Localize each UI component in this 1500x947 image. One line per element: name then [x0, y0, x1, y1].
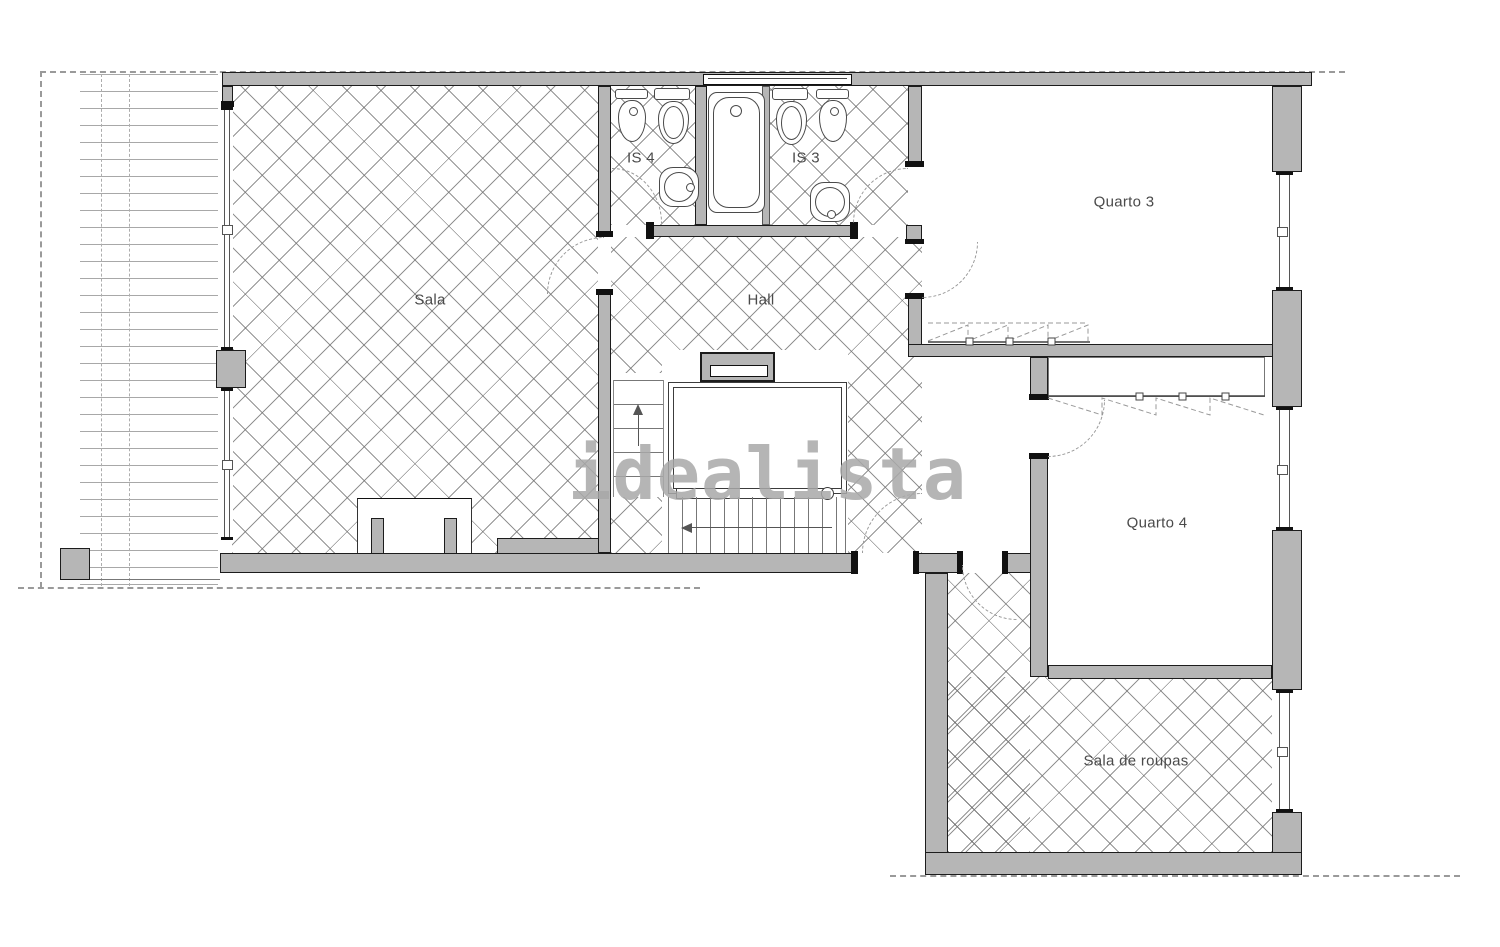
- boundary-line-left: [40, 71, 42, 588]
- wall: [220, 553, 857, 573]
- wall: [216, 350, 246, 388]
- quarto3-wardrobe-sliding-doors: [928, 322, 1090, 343]
- boundary-line-bottom-left: [18, 587, 700, 589]
- wall: [1048, 665, 1272, 679]
- stairs-up-arrow-icon: [633, 404, 643, 415]
- wall: [908, 86, 922, 167]
- room-label-is4: IS 4: [627, 150, 655, 167]
- wall: [1272, 290, 1302, 407]
- wall: [918, 553, 962, 573]
- floor-hatch-sala: [232, 86, 598, 553]
- wall: [925, 852, 1302, 875]
- sink-icon: [659, 167, 699, 207]
- toilet-icon: [772, 88, 808, 100]
- wall: [650, 225, 856, 237]
- quarto4-wardrobe-sliding-doors: [1048, 395, 1265, 418]
- toilet-icon: [654, 88, 690, 100]
- fireplace-post: [371, 518, 384, 554]
- wall: [1272, 530, 1302, 690]
- bidet-icon: [615, 89, 648, 99]
- lift-door-slot: [710, 365, 768, 377]
- wall: [598, 86, 611, 237]
- window-sala-terrace-lower: [221, 388, 233, 540]
- window-sala-de-roupas: [1276, 690, 1293, 812]
- room-label-sala: Sala: [414, 292, 445, 309]
- boundary-line-bottom-right: [890, 875, 1460, 877]
- quarto4-wardrobe-body: [1048, 357, 1265, 397]
- wall: [497, 538, 611, 554]
- room-label-hall: Hall: [747, 292, 774, 309]
- idealista-watermark: idealista: [568, 432, 967, 516]
- wall: [695, 86, 707, 225]
- terrace-joint-line: [101, 74, 102, 586]
- room-label-quarto3: Quarto 3: [1094, 194, 1155, 211]
- wall: [908, 344, 1302, 357]
- bathtub-icon: [708, 92, 765, 213]
- door-swing-quarto3: [922, 242, 978, 298]
- terrace-joint-line: [129, 74, 130, 586]
- fireplace-post: [444, 518, 457, 554]
- stairs-down-arrow-icon: [681, 523, 692, 533]
- terrace-edge-line: [90, 579, 220, 580]
- wall: [1272, 86, 1302, 172]
- window-quarto4: [1276, 407, 1293, 530]
- window-quarto3: [1276, 172, 1293, 290]
- room-label-is3: IS 3: [792, 150, 820, 167]
- room-label-sala-de-roupas: Sala de roupas: [1083, 753, 1188, 770]
- bidet-icon: [816, 89, 849, 99]
- stairs-direction-line: [690, 527, 832, 528]
- terrace-post: [60, 548, 90, 580]
- window-top: [703, 74, 852, 85]
- room-label-quarto4: Quarto 4: [1127, 515, 1188, 532]
- floor-plan: Sala IS 4 IS 3 Hall Quarto 3 Quarto 4 Sa…: [0, 0, 1500, 947]
- wall: [925, 573, 948, 875]
- window-sala-terrace-upper: [221, 107, 233, 350]
- sink-icon: [810, 182, 850, 222]
- wall: [1030, 458, 1048, 677]
